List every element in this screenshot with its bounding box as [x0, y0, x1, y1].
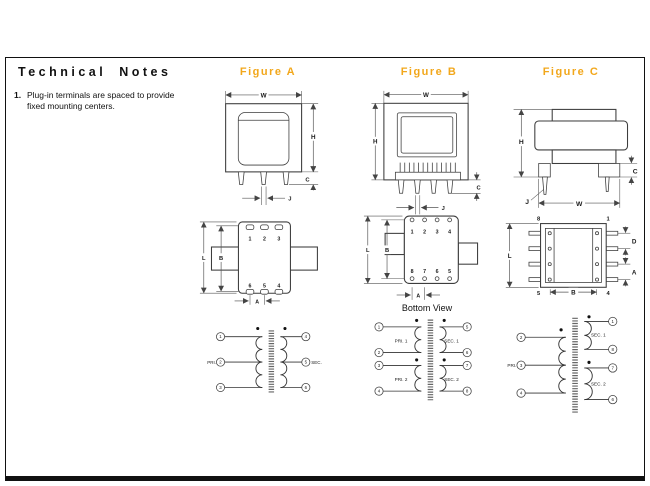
dim-l-label: L [366, 248, 370, 254]
left-leg [539, 163, 551, 177]
winding-label: SEC. 1 [444, 338, 459, 343]
terminal-hole [410, 277, 414, 281]
dim-c-label: C [305, 178, 310, 184]
polarity-dot-icon [283, 327, 286, 330]
terminal-hole [448, 277, 452, 281]
pin-label: 8 [537, 217, 541, 223]
pin [529, 278, 541, 282]
pin [606, 231, 618, 235]
pin [529, 231, 541, 235]
pin [606, 247, 618, 251]
pin-label: 1 [249, 236, 252, 242]
note-1: 1. Plug-in terminals are spaced to provi… [14, 90, 192, 113]
pin [529, 262, 541, 266]
core-tab-right [458, 243, 477, 264]
coil-body [535, 121, 628, 150]
dim-b-label: B [571, 290, 576, 297]
dim-b-label: B [385, 248, 389, 254]
winding-label: SEC. 2 [591, 382, 606, 387]
figure-a-title: Figure A [203, 66, 333, 78]
note-1-text: Plug-in terminals are spaced to provide … [27, 90, 192, 113]
bottom-flange [552, 150, 616, 164]
pin-label: 5 [537, 291, 541, 297]
terminal-hole [423, 277, 427, 281]
polarity-dot-icon [587, 361, 590, 364]
pin [605, 177, 609, 191]
terminal-slot [261, 289, 269, 294]
right-leg [599, 163, 620, 177]
top-flange [552, 109, 616, 121]
figure-b-schematic-drawing: 1 2 3 4 5 6 7 8 PRI. 1 PRI. 2 SEC. 1 SEC… [364, 314, 484, 415]
terminal-hole [448, 218, 452, 222]
winding-label: PRI. 1 [395, 338, 408, 343]
pin-label: 4 [607, 291, 611, 297]
pin-label: 1 [411, 229, 414, 235]
dim-a-label: A [632, 269, 637, 276]
pin-label: 4 [448, 229, 451, 235]
pin-label: 3 [436, 229, 439, 235]
terminal-hole [435, 218, 439, 222]
page-title: Technical Notes [18, 65, 171, 79]
polarity-dot-icon [443, 358, 446, 361]
figure-a-front-drawing: W H C J [212, 88, 324, 210]
dim-j-label: J [525, 199, 529, 206]
primary-label: PRI. [207, 360, 216, 365]
dim-j-label: J [288, 197, 291, 203]
pin-label: 3 [277, 236, 280, 242]
figure-b-title: Figure B [364, 66, 494, 78]
primary-winding-2 [415, 365, 421, 391]
dim-h-label: H [373, 139, 378, 146]
terminal-slot [275, 289, 283, 294]
figure-b-front-drawing: W H C J [368, 88, 484, 222]
terminal-slot [275, 225, 283, 230]
winding-label: SEC. 2 [444, 377, 459, 382]
dim-l-label: L [508, 253, 512, 260]
technical-notes-page: Technical Notes 1. Plug-in terminals are… [5, 57, 645, 481]
figure-c-schematic-drawing: 2 3 4 1 8 7 6 PRI. SEC. 1 SEC. 2 [506, 314, 632, 421]
pin-label: 4 [277, 283, 280, 289]
dim-b-label: B [219, 256, 223, 262]
terminal-slot [246, 225, 254, 230]
polarity-dot-icon [587, 315, 590, 318]
pin-label: 6 [436, 269, 439, 275]
figure-c-title: Figure C [506, 66, 636, 78]
terminal-slot [261, 225, 269, 230]
primary-label: PRI. [507, 363, 516, 368]
figure-c-bottom-view-drawing: 8 1 5 4 L B D A [500, 210, 640, 297]
pin [283, 172, 289, 185]
terminal-slot [246, 289, 254, 294]
pin-label: 1 [607, 217, 611, 223]
secondary-label: SEC. [311, 360, 322, 365]
dim-h-label: H [519, 139, 524, 146]
winding-label: PRI. 2 [395, 377, 408, 382]
pin-label: 2 [423, 229, 426, 235]
figure-a-bottom-view-drawing: 1 2 3 6 5 4 L B A [198, 214, 328, 306]
pin-label: 6 [249, 283, 252, 289]
polarity-dot-icon [256, 327, 259, 330]
pin-label: 5 [263, 283, 266, 289]
pin [447, 180, 453, 193]
primary-winding-1 [415, 327, 421, 353]
pin [431, 180, 437, 193]
pin [529, 247, 541, 251]
pin [415, 180, 421, 193]
polarity-dot-icon [443, 319, 446, 322]
figure-c-side-drawing: H C J W [502, 86, 642, 212]
winding-label: SEC. 1 [591, 332, 606, 337]
bottom-view-caption: Bottom View [362, 303, 492, 313]
pin-label: 2 [263, 236, 266, 242]
pin-label: 8 [411, 269, 414, 275]
base-strip [395, 172, 460, 180]
polarity-dot-icon [560, 328, 563, 331]
terminal-hole [410, 218, 414, 222]
dim-w-label: W [576, 201, 583, 208]
figure-a-schematic-drawing: 1 2 3 4 5 6 PRI. SEC. [206, 322, 324, 404]
pin-label: 5 [448, 269, 451, 275]
pin-label: 7 [423, 269, 426, 275]
dim-h-label: H [311, 134, 316, 141]
dim-c-label: C [477, 185, 481, 191]
dim-c-label: C [633, 169, 638, 176]
dim-a-label: A [416, 293, 420, 299]
polarity-dot-icon [415, 358, 418, 361]
note-1-number: 1. [14, 90, 27, 113]
pin [238, 172, 244, 185]
dim-d-label: D [632, 238, 637, 245]
figure-b-bottom-view-drawing: 1 2 3 4 8 7 6 5 L B A [362, 210, 492, 302]
dim-l-label: L [202, 256, 206, 262]
terminal-hole [423, 218, 427, 222]
pin [606, 278, 618, 282]
terminal-hole [435, 277, 439, 281]
pin [606, 262, 618, 266]
dim-w-label: W [261, 92, 267, 99]
pin [543, 177, 548, 194]
dim-a-label: A [255, 299, 259, 305]
dim-w-label: W [423, 92, 429, 99]
polarity-dot-icon [415, 319, 418, 322]
pin [261, 172, 267, 185]
pin [398, 180, 404, 193]
